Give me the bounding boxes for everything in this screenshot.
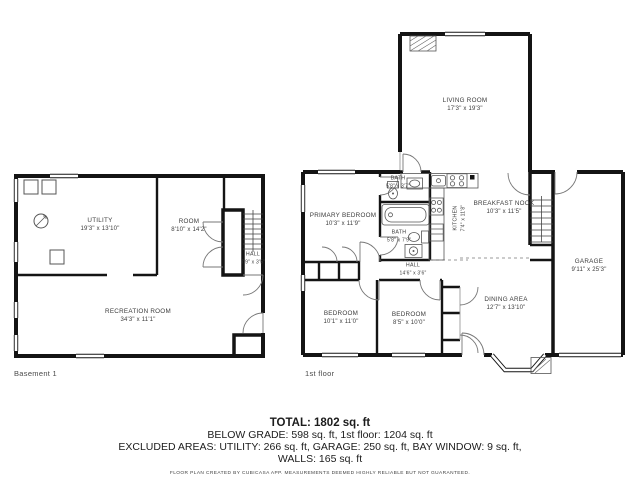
room-label-utility: UTILITY 19'3" x 13'10" (80, 216, 119, 234)
room-label-recreation: RECREATION ROOM 34'3" x 11'1" (105, 307, 171, 325)
room-dims: 10'3" x 11'9" (310, 220, 377, 229)
room-label-bedroom-right: BEDROOM 8'5" x 10'0" (392, 310, 426, 328)
room-dims: 5'8" x 3'7" (386, 183, 410, 191)
room-label-bedroom-left: BEDROOM 10'1" x 11'0" (323, 309, 358, 327)
room-label-hall-basement: HALL 7'9" x 3'5" (241, 251, 265, 266)
washer-icon (24, 180, 38, 194)
first-floor-caption: 1st floor (305, 369, 334, 378)
room-label-dining-area: DINING AREA 12'7" x 13'10" (484, 295, 527, 313)
room-dims: 8'10" x 14'2" (171, 226, 207, 235)
room-dims: 34'3" x 11'1" (105, 316, 171, 325)
room-name: BATH (387, 229, 411, 237)
room-dims: 8'5" x 10'0" (392, 319, 426, 328)
counter-appliance-icon (470, 175, 475, 180)
room-label-bath-1: BATH 5'8" x 3'7" (386, 175, 410, 190)
room-dims: 9'11" x 25'3" (571, 266, 606, 275)
room-dims: 14'6" x 3'6" (399, 270, 426, 278)
floor-plan-page: UTILITY 19'3" x 13'10" ROOM 8'10" x 14'2… (0, 0, 640, 480)
room-dims: 17'3" x 19'3" (443, 105, 488, 114)
room-name: BEDROOM (323, 309, 358, 318)
room-dims: 10'3" x 11'5" (474, 208, 535, 217)
room-dims: 7'9" x 3'5" (241, 259, 265, 267)
room-label-hall: HALL 14'6" x 3'6" (399, 262, 426, 277)
utility-fixtures (24, 180, 64, 264)
credit-line: FLOOR PLAN CREATED BY CUBICASA APP. MEAS… (0, 471, 640, 476)
room-name: UTILITY (80, 216, 119, 225)
dryer-icon (42, 180, 56, 194)
room-name: PRIMARY BEDROOM (310, 211, 377, 220)
basement-plan (14, 174, 265, 358)
basement-windows (16, 176, 104, 356)
room-name: BREAKFAST NOOK (474, 199, 535, 208)
area-summary: TOTAL: 1802 sq. ft BELOW GRADE: 598 sq. … (0, 417, 640, 476)
basement-stairs-icon (243, 210, 263, 252)
room-label-bath-2: BATH 5'8" x 7'9" (387, 229, 411, 244)
room-label-living-room: LIVING ROOM 17'3" x 19'3" (443, 96, 488, 114)
room-name: BATH (386, 175, 410, 183)
room-dims: 19'3" x 13'10" (80, 225, 119, 234)
room-label-room: ROOM 8'10" x 14'2" (171, 217, 207, 235)
room-label-garage: GARAGE 9'11" x 25'3" (571, 257, 606, 275)
basement-walls (16, 176, 266, 356)
room-label-kitchen: KITCHEN 7'4" x 11'8" (452, 205, 467, 232)
excluded-areas: EXCLUDED AREAS: UTILITY: 266 sq. ft, GAR… (0, 442, 640, 454)
room-dims: 10'1" x 11'0" (323, 318, 358, 327)
equipment-icon (50, 250, 64, 264)
room-name: RECREATION ROOM (105, 307, 171, 316)
room-name: GARAGE (571, 257, 606, 266)
room-name: HALL (399, 262, 426, 270)
first-floor-fill (303, 34, 623, 355)
room-dims: 5'8" x 7'9" (387, 237, 411, 245)
room-dims: 12'7" x 13'10" (484, 304, 527, 313)
water-heater-icon (34, 214, 48, 228)
room-label-breakfast-nook: BREAKFAST NOOK 10'3" x 11'5" (474, 199, 535, 217)
room-dims: 7'4" x 11'8" (460, 205, 468, 232)
room-name: LIVING ROOM (443, 96, 488, 105)
room-name: KITCHEN (452, 205, 460, 232)
room-label-primary-bedroom: PRIMARY BEDROOM 10'3" x 11'9" (310, 211, 377, 229)
room-name: DINING AREA (484, 295, 527, 304)
basement-caption: Basement 1 (14, 369, 57, 378)
room-name: HALL (241, 251, 265, 259)
room-name: ROOM (171, 217, 207, 226)
walls-area: WALLS: 165 sq. ft (0, 454, 640, 466)
room-name: BEDROOM (392, 310, 426, 319)
